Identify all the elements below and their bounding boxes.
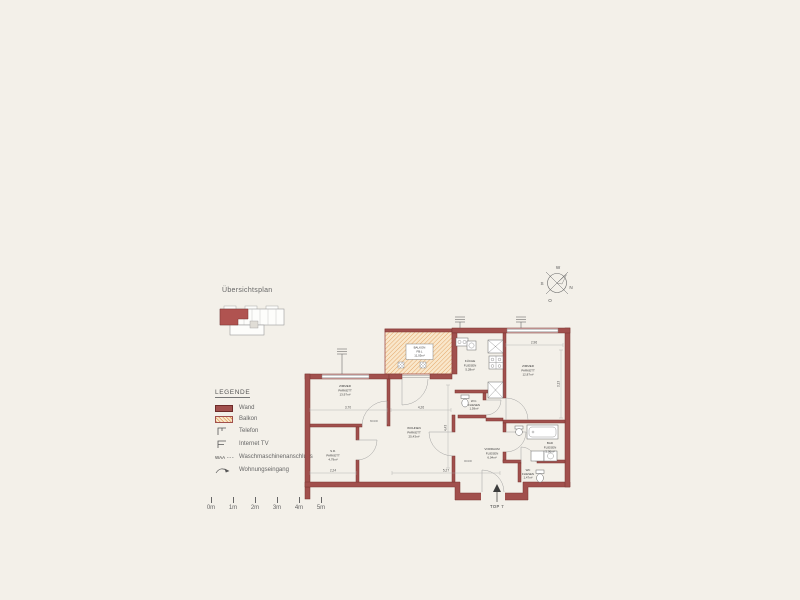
overview-plan-thumbnail (214, 297, 290, 343)
balcony-swatch-icon (215, 416, 233, 423)
entrance-arrow-icon (493, 484, 501, 492)
appliance-icon (467, 341, 476, 350)
scale-tick (277, 497, 278, 503)
dimension-text: 2,96 (531, 341, 537, 345)
legend-title: LEGENDE (215, 389, 250, 398)
room-area: 6,04m² (487, 456, 496, 460)
scale-tick (255, 497, 256, 503)
scale-label: 3m (267, 505, 287, 511)
compass-north: N (569, 285, 572, 290)
dimension-text: 4,43 (444, 425, 448, 431)
bath-counter-icon (531, 451, 544, 461)
washing-machine-connection-icon: WAA (215, 452, 235, 462)
room-area: 5,28m² (465, 368, 474, 372)
legend-label: Wand (239, 405, 254, 411)
room-area: 25,43m² (408, 435, 419, 439)
room-area: 5,06m² (545, 450, 554, 454)
wall-swatch-icon (215, 405, 233, 412)
overview-plan-title: Übersichtsplan (222, 287, 273, 294)
legend-label: Balkon (239, 416, 257, 422)
room-label-bad: BAD FLIESEN 5,06m² (544, 441, 557, 454)
room-area: 11,05m² (414, 354, 424, 358)
compass-rose: W S N O (537, 259, 577, 303)
room-label-zimmer-ost: ZIMMER PARKETT 12,87m² (521, 364, 535, 377)
room-label-wc: WC FLIESEN 1,47m² (522, 468, 534, 480)
telephone-outlet-icon (215, 426, 231, 436)
compass-west: W (556, 265, 561, 270)
floor-plan: BALKON FB:L 11,05m² (295, 315, 585, 520)
door-size-label: 80/200 (370, 419, 378, 423)
room-label-wc-klein: W.C. FLIESEN 1,59m² (468, 399, 480, 411)
room-area: 13,97m² (339, 393, 350, 397)
room-area: 4,79m² (328, 458, 337, 462)
compass-south: S (540, 281, 543, 286)
toilet-icon (537, 474, 544, 482)
dimension-text: 3,13 (557, 381, 561, 387)
room-label-vorraum: VORRAUM FLIESEN 6,04m² (484, 447, 500, 460)
entrance-arrow-icon (215, 465, 231, 475)
scale-label: 0m (201, 505, 221, 511)
scale-tick (233, 497, 234, 503)
room-label-kueche: KÜCHE FLIESEN 5,28m² (464, 359, 477, 372)
dimension-text: 2,24 (330, 469, 336, 473)
room-area: 12,87m² (522, 373, 533, 377)
svg-text:WAA: WAA (215, 455, 225, 460)
compass-east: O (548, 298, 552, 303)
room-area: 1,59m² (470, 407, 479, 411)
room-area: 1,47m² (524, 476, 533, 480)
room-label-wohnen: WOHNEN PARKETT 25,43m² (407, 426, 421, 439)
toilet-tank-icon (461, 395, 469, 399)
dimension-text: 4,26 (418, 406, 424, 410)
internet-tv-outlet-icon (215, 439, 231, 449)
scale-label: 2m (245, 505, 265, 511)
dimension-text: 3,70 (345, 406, 351, 410)
scale-label: 1m (223, 505, 243, 511)
room-label-zimmer-west: ZIMMER PARKETT 13,97m² (338, 384, 352, 397)
entrance-opening (481, 492, 505, 501)
unit-number-label: TOP 7 (490, 504, 504, 509)
door-size-label: 90/200 (464, 459, 472, 463)
scale-tick (211, 497, 212, 503)
compass-needle (557, 275, 567, 285)
dimension-text: 5,27 (443, 469, 449, 473)
balcony-planter-icon (398, 362, 404, 368)
room-label-schrankraum: S.R. PARKETT 4,79m² (326, 449, 340, 462)
kitchen-fixtures (456, 338, 503, 398)
legend-label: Telefon (239, 428, 258, 434)
legend-label: Internet TV (239, 441, 269, 447)
balcony-planter-icon (420, 362, 426, 368)
toilet-tank-icon (536, 470, 544, 474)
balcony: BALKON FB:L 11,05m² (385, 329, 452, 374)
legend-label: Wohnungseingang (239, 467, 289, 473)
